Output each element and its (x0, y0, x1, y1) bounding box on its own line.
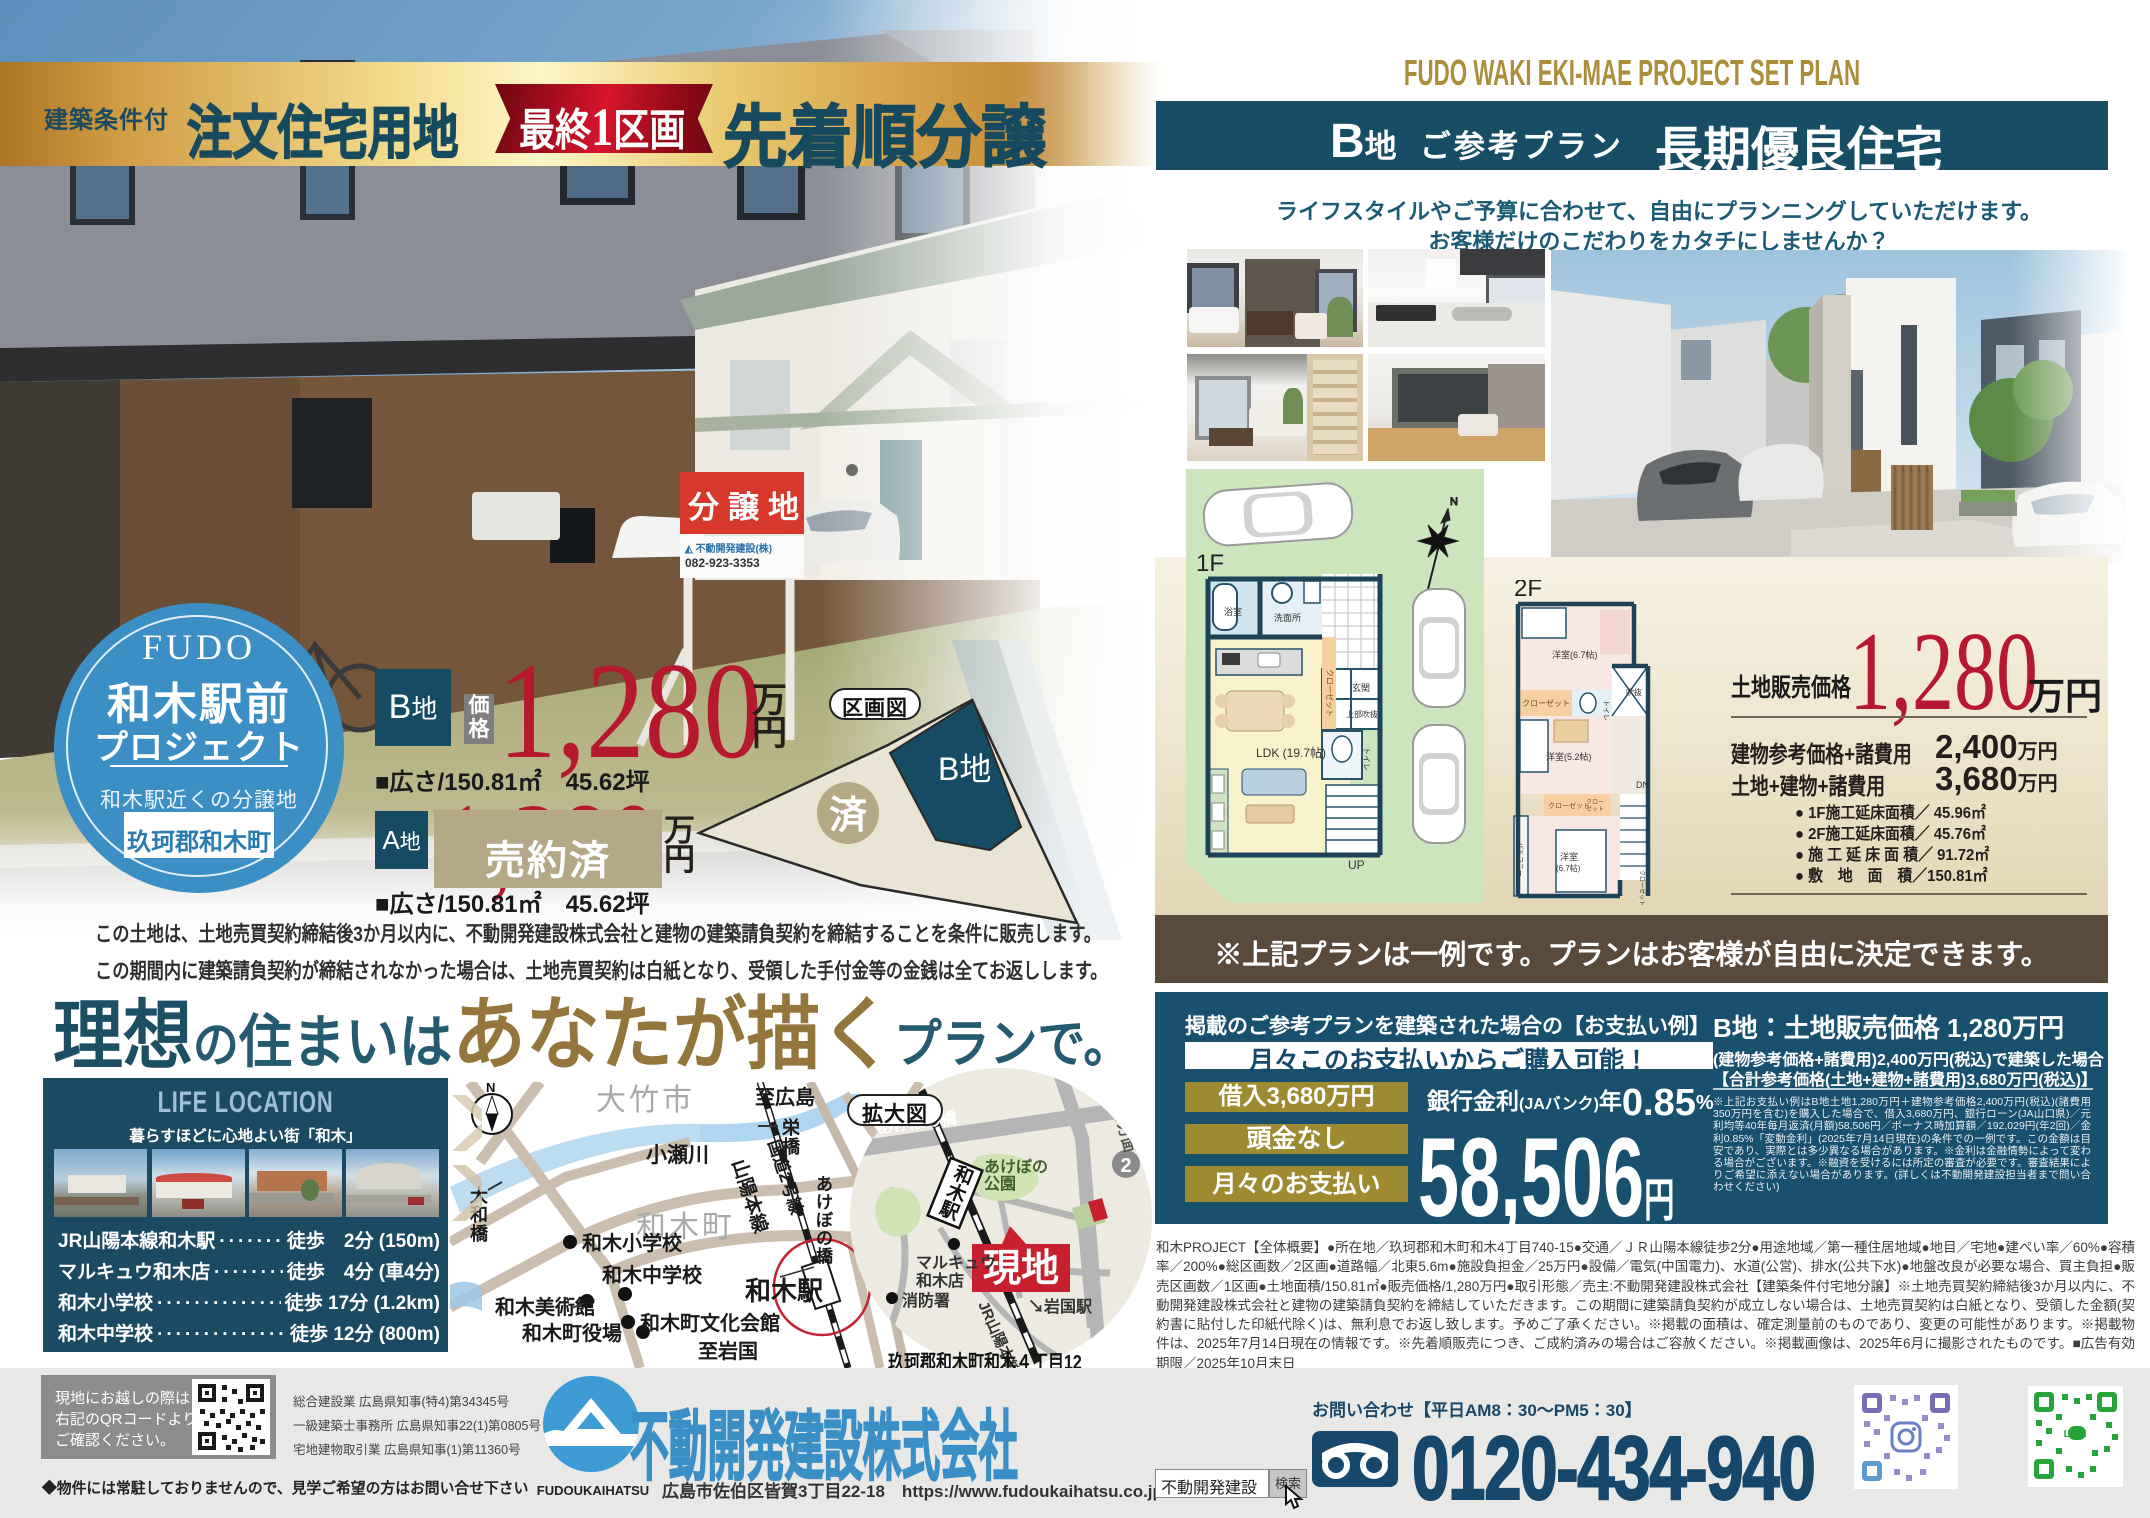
svg-text:和木中学校: 和木中学校 (602, 1263, 703, 1287)
svg-text:クローゼット: クローゼット (1638, 870, 1646, 905)
svg-text:公園: 公園 (984, 1175, 1016, 1193)
svg-text:LDK (19.7帖): LDK (19.7帖) (1256, 745, 1326, 760)
svg-text:クローゼット: クローゼット (1548, 801, 1590, 810)
svg-text:1F: 1F (1196, 550, 1224, 577)
svg-text:玄関: 玄関 (1352, 682, 1370, 693)
svg-text:小瀬川: 小瀬川 (646, 1144, 709, 1167)
svg-text:洗面所: 洗面所 (1274, 612, 1301, 623)
svg-text:国道2号線: 国道2号線 (764, 1137, 807, 1218)
svg-text:和木駅: 和木駅 (745, 1276, 823, 1306)
svg-text:バルコニー: バルコニー (1516, 842, 1524, 877)
svg-text:クロー: クロー (1586, 799, 1604, 806)
svg-text:トイレ: トイレ (1362, 747, 1371, 771)
svg-text:ゼット: ゼット (1586, 805, 1604, 813)
svg-text:和木町文化会館: 和木町文化会館 (640, 1311, 780, 1335)
svg-text:洋室(6.7帖): 洋室(6.7帖) (1552, 649, 1598, 660)
svg-text:洋室(5.2帖): 洋室(5.2帖) (1546, 751, 1592, 762)
svg-text:トイレ: トイレ (1602, 700, 1609, 721)
svg-text:クローゼット: クローゼット (1522, 698, 1570, 708)
svg-text:あけぼの: あけぼの (984, 1158, 1048, 1176)
svg-text:LINE: LINE (2064, 1429, 2087, 1440)
svg-text:あけぼの橋: あけぼの橋 (816, 1175, 834, 1266)
svg-text:N: N (1450, 496, 1458, 508)
svg-text:吹抜: 吹抜 (1626, 687, 1642, 697)
svg-text:DN: DN (1636, 780, 1649, 790)
svg-text:至広島: 至広島 (755, 1085, 815, 1109)
svg-text:消防署: 消防署 (902, 1291, 950, 1310)
svg-text:(6.7帖): (6.7帖) (1556, 863, 1581, 873)
svg-text:和木町役場: 和木町役場 (522, 1321, 622, 1345)
svg-text:大竹市: 大竹市 (596, 1084, 695, 1117)
svg-text:B地: B地 (938, 751, 991, 787)
svg-text:2: 2 (1120, 1155, 1131, 1177)
svg-text:N: N (486, 1082, 495, 1095)
svg-text:和木美術館: 和木美術館 (495, 1295, 595, 1319)
svg-text:和木小学校: 和木小学校 (582, 1231, 683, 1255)
svg-text:クローゼット: クローゼット (1325, 669, 1335, 717)
svg-text:上部吹抜: 上部吹抜 (1346, 709, 1378, 719)
svg-text:洋室: 洋室 (1560, 851, 1578, 862)
svg-text:UP: UP (1348, 858, 1365, 872)
svg-text:↘岩国駅: ↘岩国駅 (1028, 1297, 1093, 1316)
svg-text:済: 済 (829, 795, 868, 837)
svg-text:2F: 2F (1514, 580, 1542, 602)
svg-text:和木店: 和木店 (916, 1271, 964, 1290)
svg-text:マルキュウ: マルキュウ (916, 1254, 996, 1272)
svg-text:浴室: 浴室 (1224, 606, 1242, 617)
svg-text:至岩国: 至岩国 (698, 1340, 758, 1363)
